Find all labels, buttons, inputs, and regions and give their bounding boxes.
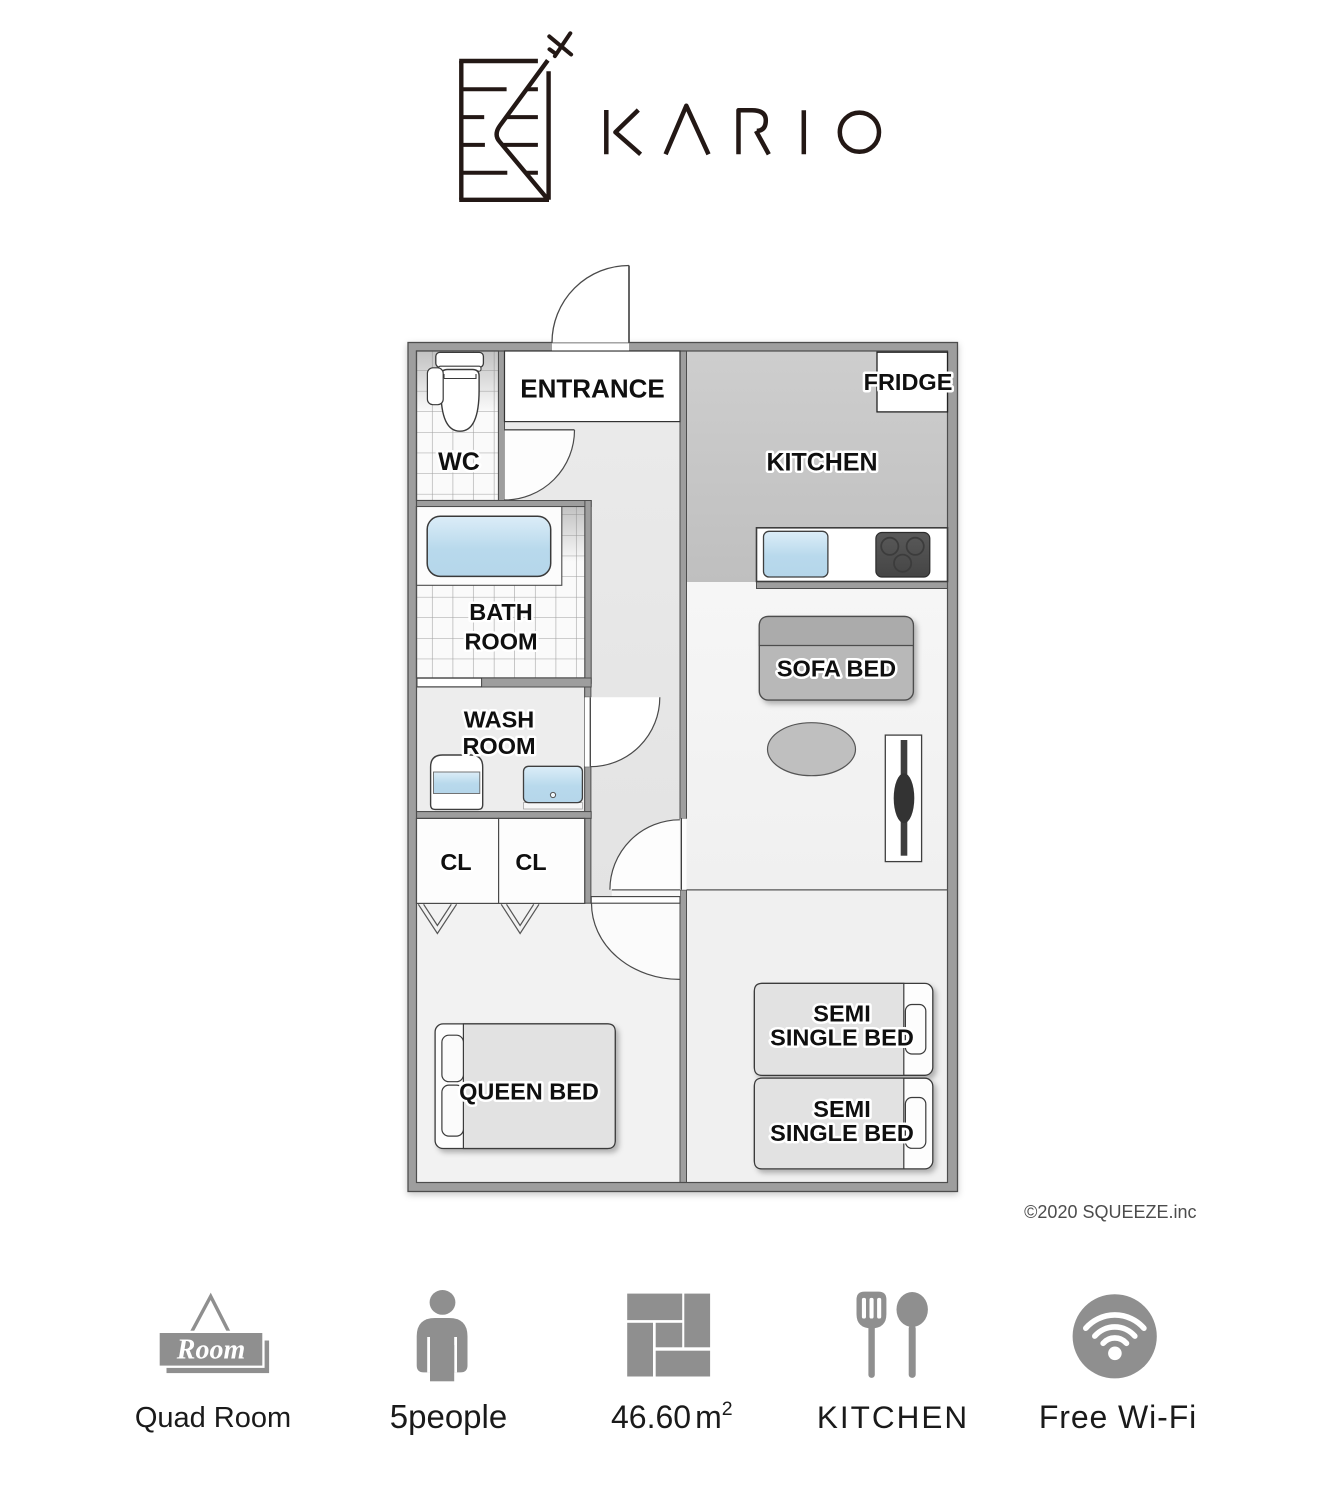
svg-text:WASHROOM: WASHROOM (462, 706, 535, 759)
svg-text:WC: WC (438, 448, 480, 476)
svg-text:46.60m2: 46.60m2 (611, 1398, 733, 1435)
svg-text:FRIDGE: FRIDGE (864, 369, 953, 395)
svg-text:KITCHEN: KITCHEN (817, 1399, 969, 1435)
svg-text:Room: Room (176, 1335, 245, 1366)
svg-text:Free Wi-Fi: Free Wi-Fi (1039, 1399, 1197, 1435)
svg-text:SOFA BED: SOFA BED (777, 656, 896, 682)
svg-text:CL: CL (440, 849, 471, 875)
svg-text:5people: 5people (390, 1398, 507, 1435)
svg-text:ENTRANCE: ENTRANCE (520, 374, 664, 404)
svg-text:©2020 SQUEEZE.inc: ©2020 SQUEEZE.inc (1024, 1202, 1196, 1222)
svg-text:QUEEN BED: QUEEN BED (459, 1079, 599, 1105)
svg-text:Quad Room: Quad Room (135, 1402, 291, 1434)
svg-text:KITCHEN: KITCHEN (766, 449, 877, 477)
svg-text:CL: CL (515, 849, 546, 875)
